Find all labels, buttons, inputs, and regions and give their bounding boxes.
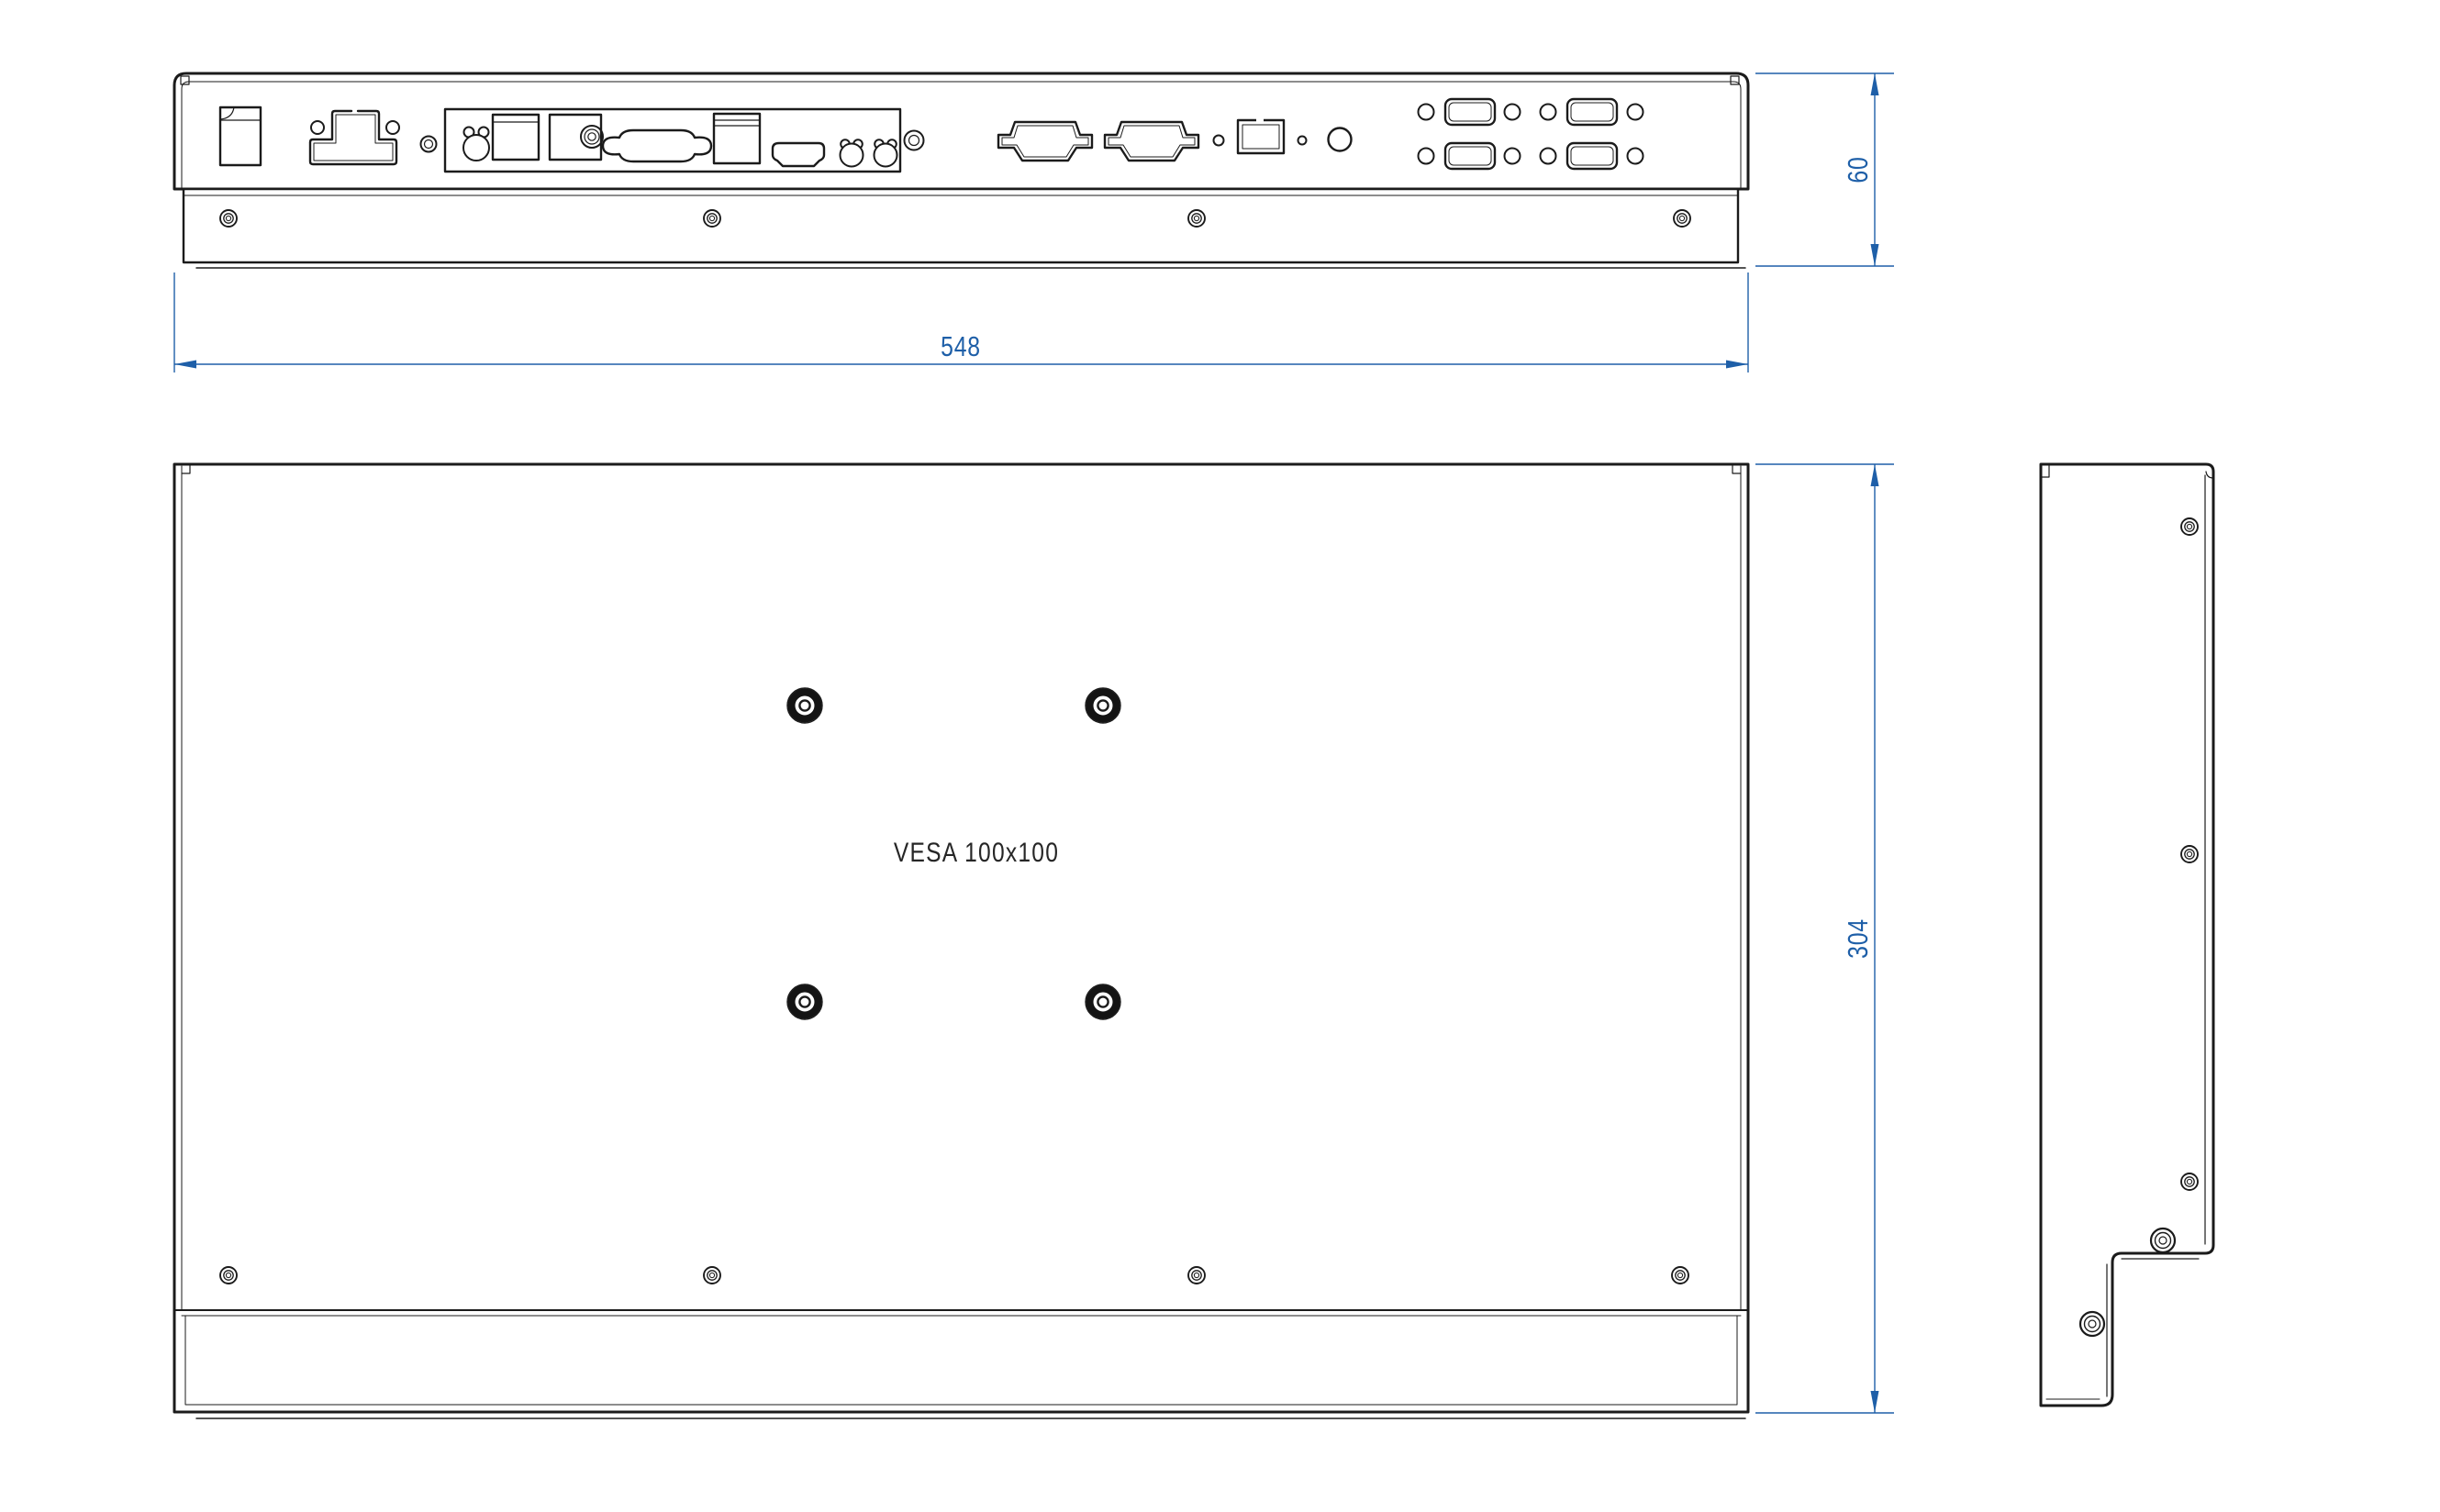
power-slot-cutout <box>220 107 261 165</box>
drawing-sheet: VESA 100x100 548 <box>0 0 2440 1512</box>
hdmi-port-cutout <box>773 143 824 166</box>
arrow-icon <box>1726 361 1748 369</box>
rear-view-outline <box>174 464 1748 1412</box>
arrow-icon <box>1871 244 1879 266</box>
dim-height-label: 304 <box>1842 918 1873 959</box>
rear-view: VESA 100x100 <box>174 464 1748 1418</box>
usb-port-cutout <box>493 115 539 160</box>
audio-jack-cutout <box>875 139 897 166</box>
top-view-body-outline <box>174 73 1748 189</box>
arrow-icon <box>174 361 196 369</box>
arrow-icon <box>1871 1391 1879 1413</box>
usb-port-cutout-2 <box>714 114 760 163</box>
top-view <box>174 73 1748 268</box>
dim-width: 548 <box>174 272 1748 372</box>
side-view-outline <box>2041 464 2213 1406</box>
arrow-icon <box>1871 73 1879 95</box>
side-view <box>2041 464 2213 1406</box>
dim-depth: 60 <box>1755 73 1894 266</box>
front-bezel-strip <box>184 189 1738 262</box>
technical-drawing: VESA 100x100 548 <box>0 0 2440 1512</box>
dim-depth-label: 60 <box>1842 156 1873 183</box>
arrow-icon <box>1871 464 1879 486</box>
audio-jack-cutout <box>841 139 863 166</box>
dim-height: 304 <box>1755 464 1894 1413</box>
dim-width-label: 548 <box>941 330 981 361</box>
dc-jack-cutout <box>550 115 603 160</box>
vesa-label: VESA 100x100 <box>894 837 1059 868</box>
